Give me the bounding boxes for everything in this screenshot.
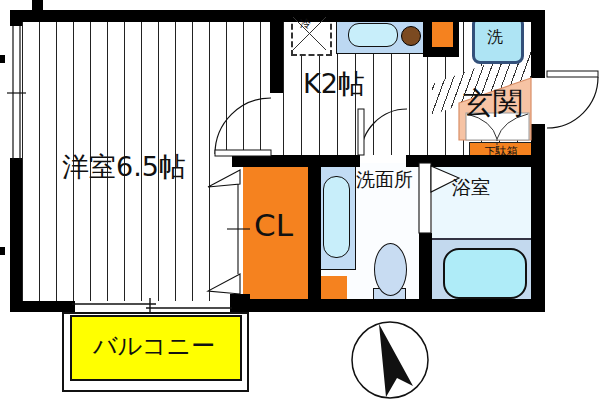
vanity-bowl (323, 176, 350, 258)
dimension-tick (0, 55, 5, 63)
washing-machine-label: 洗 (472, 16, 518, 58)
wall (10, 10, 22, 26)
toilet-bowl (374, 243, 407, 296)
compass-north-icon (352, 322, 428, 398)
entrance-label: 玄関 (463, 88, 523, 118)
wall (531, 124, 545, 312)
wall (419, 233, 432, 303)
wall (230, 294, 250, 304)
floor-plan: 下駄箱 (0, 0, 600, 408)
wall-notch (32, 0, 43, 10)
entrance-door-swing-icon (547, 71, 598, 128)
washroom-label: 洗面所 (356, 170, 413, 189)
wall (406, 155, 545, 167)
wall (10, 301, 75, 312)
closet-label: CL (254, 210, 293, 241)
western-room-label: 洋室6.5帖 (62, 153, 186, 180)
wall (10, 10, 545, 22)
wall (10, 158, 22, 312)
burner-icon (401, 26, 421, 46)
wall (232, 155, 360, 167)
dimension-tick (0, 247, 5, 255)
bathtub (443, 248, 527, 299)
wall (270, 22, 283, 93)
wall (531, 10, 545, 78)
refrigerator-label: 冷 (300, 18, 311, 29)
wall (308, 155, 321, 303)
balcony-label: バルコニー (70, 315, 238, 377)
wall (230, 299, 545, 312)
kitchen-label: K2帖 (303, 70, 365, 97)
bathroom-floor (432, 162, 531, 238)
western-room-floor (22, 22, 271, 155)
bathroom-label: 浴室 (452, 178, 490, 197)
kitchen-sink (348, 23, 398, 47)
